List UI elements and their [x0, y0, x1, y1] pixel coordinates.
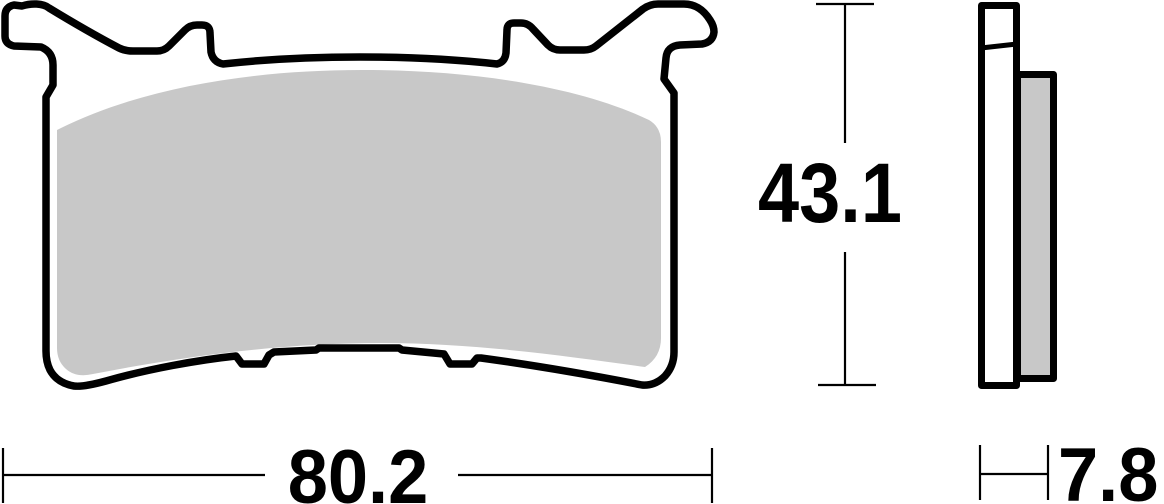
friction-material-side	[1018, 75, 1054, 379]
brake-pad-technical-drawing: 43.1 80.2 7.8	[0, 0, 1164, 504]
backplate-side	[982, 6, 1017, 386]
thickness-dimension-line	[980, 445, 1048, 500]
width-dimension-label: 80.2	[263, 440, 453, 504]
thickness-dimension-label: 7.8	[1058, 438, 1158, 504]
drawing-shapes	[3, 4, 1054, 503]
height-dimension-label: 43.1	[755, 151, 905, 235]
drawing-svg	[0, 0, 1164, 504]
friction-material-front	[57, 70, 661, 375]
